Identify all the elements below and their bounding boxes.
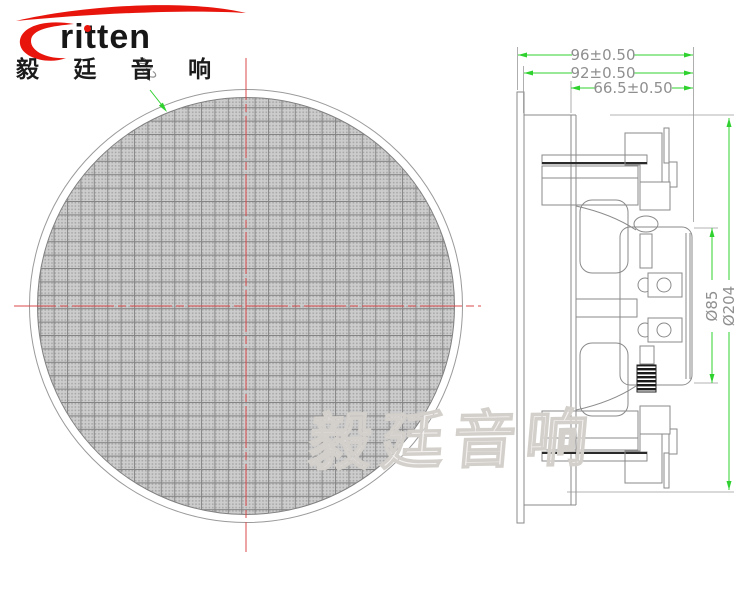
speaker-drawing: 232 xyxy=(0,0,750,600)
dim-front-depth: 66.5±0.50 xyxy=(593,79,672,97)
dim-magnet-diameter: Ø85 xyxy=(703,291,721,322)
spring-terminal-hatch xyxy=(637,365,656,392)
terminal-upper xyxy=(638,273,682,297)
brand-name-chinese: 毅 廷 音 响 xyxy=(16,50,225,84)
surround-roll xyxy=(634,216,658,232)
drawing-canvas: 232 xyxy=(0,0,750,600)
top-mounting-clamp xyxy=(542,128,677,210)
brand-logo: ritten 毅 廷 音 响 xyxy=(8,2,253,82)
brand-i-dot xyxy=(84,25,91,32)
watermark-text: 毅廷音响 xyxy=(306,387,602,482)
magnet-assembly xyxy=(620,227,692,392)
dim-overall-width: 96±0.50 xyxy=(570,46,635,64)
dim-outer-diameter: Ø204 xyxy=(720,286,738,326)
terminal-lower xyxy=(638,318,682,342)
